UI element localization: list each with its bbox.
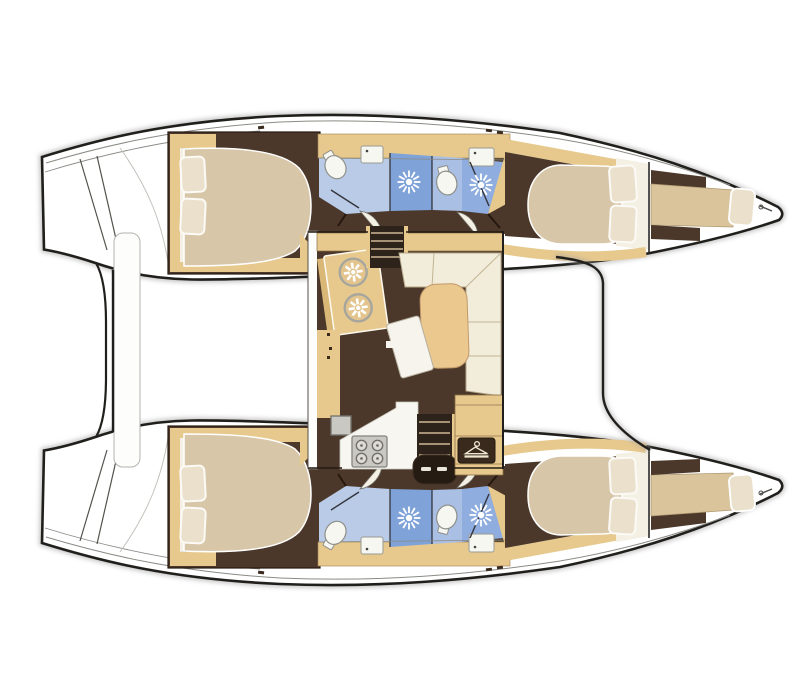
pillow	[180, 156, 206, 192]
galley-cabinet	[317, 330, 340, 418]
stair-landing	[413, 455, 457, 484]
burner-dot	[376, 457, 379, 460]
galley-square-sink	[331, 416, 351, 435]
saloon-trim	[317, 233, 368, 251]
pillow	[609, 205, 637, 242]
pillow	[728, 188, 755, 226]
saloon	[308, 226, 503, 484]
fitting-mark	[329, 347, 332, 350]
faucet-dot	[366, 150, 369, 153]
bathroom-sink	[361, 146, 383, 163]
aft-platform	[114, 233, 140, 467]
floor-plan-canvas	[0, 0, 800, 700]
deck-hatch-mark	[497, 131, 503, 135]
catamaran-floor-plan	[0, 0, 800, 700]
landing-step-mark	[421, 467, 431, 471]
deck-hatch-mark	[486, 129, 492, 133]
stern-inner-line	[96, 263, 106, 350]
aft-cabin	[168, 132, 320, 274]
foredeck-boundary-line	[556, 257, 650, 450]
stove	[352, 436, 387, 467]
pillow	[180, 198, 206, 234]
wardrobe	[455, 395, 503, 475]
cabin-trim	[170, 134, 180, 272]
saloon-trim	[406, 233, 503, 251]
side-window-strip	[308, 231, 318, 469]
fitting-mark	[327, 356, 330, 359]
fitting-mark	[327, 333, 330, 336]
pillow	[609, 165, 637, 203]
bathroom-sink	[469, 148, 494, 166]
stairs-to-starboard-hull	[413, 414, 457, 484]
faucet-dot	[474, 152, 477, 155]
burner-dot	[360, 444, 363, 447]
forepeak-bunk	[651, 184, 733, 227]
burner-dot	[376, 444, 379, 447]
burner-dot	[360, 457, 363, 460]
table-leg-mark	[386, 341, 393, 348]
bathrooms	[318, 134, 510, 237]
landing-step-mark	[437, 467, 447, 471]
double-bed	[528, 165, 622, 244]
